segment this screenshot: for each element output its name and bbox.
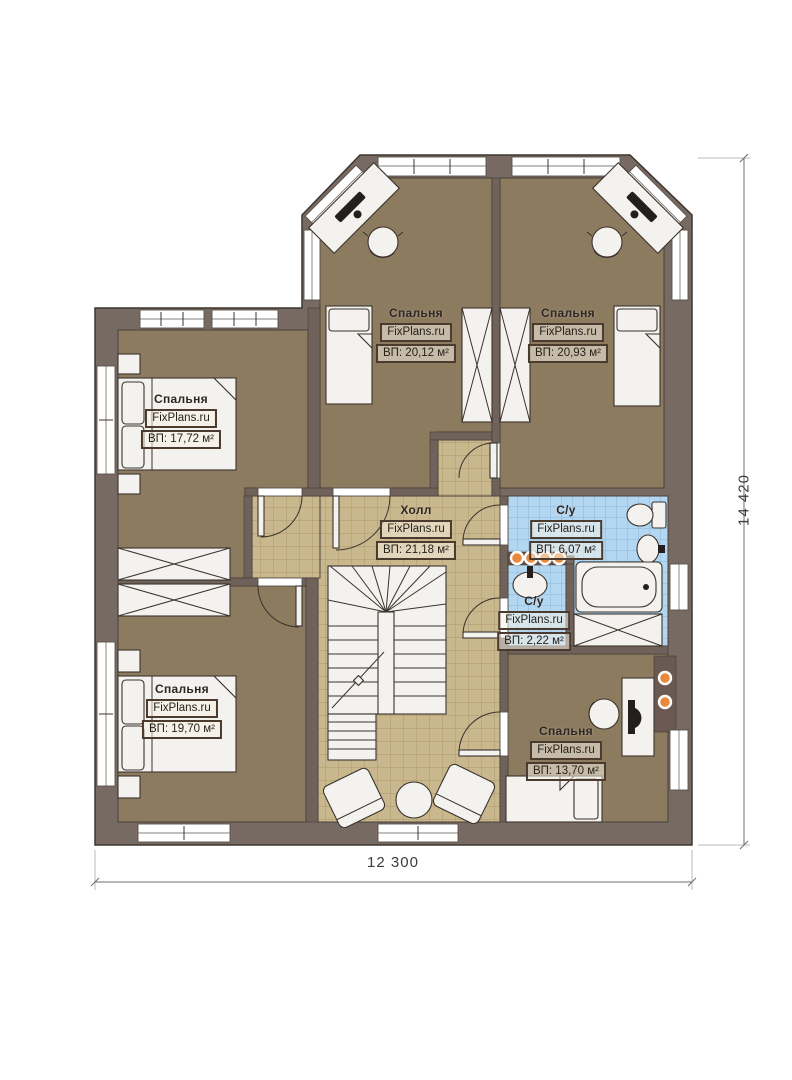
desk-chair (589, 699, 619, 729)
window (670, 730, 688, 790)
window (97, 642, 115, 786)
floor-plan-drawing (0, 0, 792, 1080)
nightstand (118, 474, 140, 494)
toilet (627, 502, 666, 528)
wardrobe (500, 308, 530, 422)
single-bed (326, 306, 372, 404)
round-table (396, 782, 432, 818)
window (512, 157, 620, 176)
window (304, 230, 320, 300)
floor-hall-jut (438, 440, 492, 496)
dimension-width: 12 300 (367, 854, 419, 871)
window (378, 157, 486, 176)
stair-newel (378, 612, 394, 714)
stair-lower-flight (328, 714, 376, 760)
dimension-height: 14 420 (736, 474, 753, 526)
bathtub (576, 562, 662, 612)
floor-plan-page: Спальня FixPlans.ru ВП: 20,12 м² Спальня… (0, 0, 792, 1080)
window (212, 310, 278, 328)
window (140, 310, 204, 328)
nightstand (118, 776, 140, 798)
nightstand (118, 650, 140, 672)
window (672, 230, 688, 300)
desk (622, 678, 654, 756)
wardrobe (118, 548, 230, 580)
window (138, 824, 230, 842)
window (97, 366, 115, 474)
single-bed (614, 306, 660, 406)
single-bed (506, 776, 602, 822)
wardrobe (462, 308, 492, 422)
wardrobe (118, 584, 230, 616)
wardrobe (574, 614, 662, 646)
window (378, 824, 458, 842)
nightstand (118, 354, 140, 374)
window (670, 564, 688, 610)
